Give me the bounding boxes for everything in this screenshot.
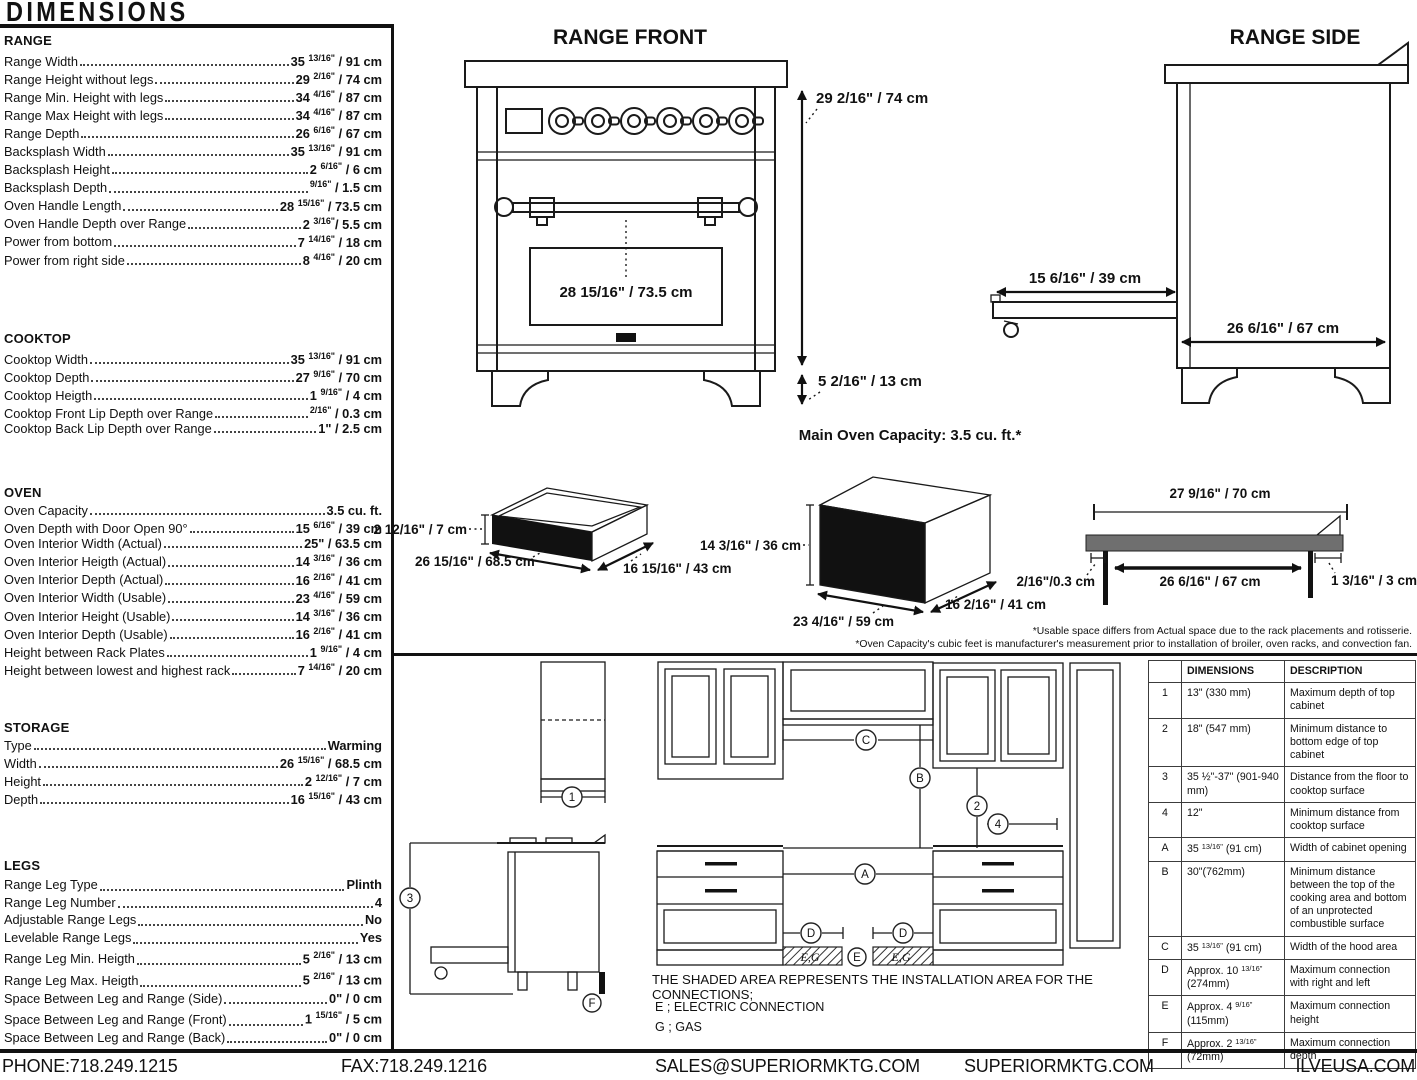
table-description-cell: Maximum connection height	[1285, 996, 1416, 1032]
footer-divider	[0, 1049, 1417, 1053]
dotted-leader	[168, 565, 293, 567]
spec-label: Adjustable Range Legs	[4, 911, 136, 929]
spec-row: Oven Interior Width (Usable)23 4/16" / 5…	[4, 588, 382, 606]
spec-value: 8 4/16" / 20 cm	[303, 250, 382, 268]
legend-gas: G ; GAS	[655, 1020, 702, 1034]
spec-label: Range Depth	[4, 126, 79, 141]
svg-text:1: 1	[569, 792, 575, 804]
spec-label: Power from bottom	[4, 234, 112, 249]
spec-value: 7 14/16" / 20 cm	[298, 660, 382, 678]
table-dimension-cell: 30"(762mm)	[1182, 861, 1285, 936]
spec-value: 2 12/16" / 7 cm	[305, 771, 382, 789]
spec-value: 35 13/16" / 91 cm	[291, 349, 382, 367]
spec-row: Oven Depth with Door Open 90°15 6/16" / …	[4, 518, 382, 536]
rack-lip-label: 2/16"/0.3 cm	[1017, 574, 1095, 589]
spec-row: Power from bottom7 14/16" / 18 cm	[4, 232, 382, 250]
table-description-cell: Minimum distance between the top of the …	[1285, 861, 1416, 936]
rack-span-label: 26 6/16" / 67 cm	[1160, 574, 1261, 589]
right-foot	[704, 371, 760, 406]
svg-text:D: D	[807, 928, 815, 940]
dotted-leader	[188, 227, 301, 229]
spec-label: Backsplash Height	[4, 162, 110, 177]
dotted-leader	[34, 748, 326, 750]
callout-D-left: D	[801, 923, 821, 943]
svg-text:D: D	[899, 928, 907, 940]
drawer-depth-label: 16 15/16" / 43 cm	[623, 561, 731, 576]
spec-list-oven: Oven Capacity3.5 cu. ft.Oven Depth with …	[4, 503, 382, 678]
footer-phone: PHONE:718.249.1215	[2, 1056, 178, 1077]
spec-value: 4	[375, 894, 382, 912]
dotted-leader	[214, 431, 317, 433]
spec-label: Height	[4, 774, 41, 789]
spec-value: 3.5 cu. ft.	[327, 503, 382, 518]
range-body	[477, 87, 775, 371]
table-key-cell: B	[1149, 861, 1182, 936]
table-key-cell: D	[1149, 959, 1182, 995]
svg-text:C: C	[862, 735, 870, 747]
spec-value: 1 9/16" / 4 cm	[310, 642, 382, 660]
spec-row: Range Depth26 6/16" / 67 cm	[4, 123, 382, 141]
dotted-leader	[118, 906, 373, 908]
spec-row: Levelable Range LegsYes	[4, 929, 382, 947]
dotted-leader	[172, 619, 293, 621]
dotted-leader	[43, 784, 303, 786]
table-key-cell: 3	[1149, 767, 1182, 802]
spec-label: Range Leg Number	[4, 894, 116, 912]
spec-value: 34 4/16" / 87 cm	[296, 87, 382, 105]
spec-value: 0" / 0 cm	[329, 990, 382, 1008]
spec-row: Oven Interior Height (Usable)14 3/16" / …	[4, 606, 382, 624]
spec-row: Range Leg Max. Heigth5 2/16" / 13 cm	[4, 968, 382, 989]
table-row: C35 13/16" (91 cm)Width of the hood area	[1149, 936, 1416, 959]
spec-value: 28 15/16" / 73.5 cm	[280, 196, 382, 214]
left-foot	[492, 371, 548, 406]
dotted-leader	[165, 100, 293, 102]
rack-top-label: 27 9/16" / 70 cm	[1170, 486, 1271, 501]
spec-row: Depth16 15/16" / 43 cm	[4, 789, 382, 807]
spec-row: Oven Capacity3.5 cu. ft.	[4, 503, 382, 518]
callout-1: 1	[562, 787, 582, 807]
spec-row: Width26 15/16" / 68.5 cm	[4, 753, 382, 771]
table-description-cell: Maximum connection with right and left	[1285, 959, 1416, 995]
table-dimension-cell: Approx. 4 9/16" (115mm)	[1182, 996, 1285, 1032]
dotted-leader	[232, 673, 295, 675]
open-door-profile	[431, 947, 508, 963]
dotted-leader	[165, 118, 293, 120]
table-description-cell: Width of cabinet opening	[1285, 838, 1416, 861]
spec-label: Oven Interior Width (Usable)	[4, 590, 166, 605]
spec-value: 26 6/16" / 67 cm	[296, 123, 382, 141]
spec-label: Cooktop Front Lip Depth over Range	[4, 406, 213, 421]
spec-label: Type	[4, 738, 32, 753]
installation-side-view: 1 3 F	[398, 658, 613, 1010]
dotted-leader	[155, 82, 293, 84]
table-header-cell	[1149, 661, 1182, 683]
section-heading: RANGE	[4, 33, 382, 48]
spec-list-range: Range Width35 13/16" / 91 cmRange Height…	[4, 51, 382, 268]
spec-value: No	[365, 911, 382, 929]
table-key-cell: A	[1149, 838, 1182, 861]
section-cooktop: COOKTOP Cooktop Width35 13/16" / 91 cmCo…	[4, 331, 382, 436]
spec-value: 16 15/16" / 43 cm	[291, 789, 382, 807]
spec-value: 27 9/16" / 70 cm	[296, 367, 382, 385]
spec-row: Oven Interior Width (Actual)25" / 63.5 c…	[4, 536, 382, 551]
spec-row: Height2 12/16" / 7 cm	[4, 771, 382, 789]
oven-interior-drawing: 14 3/16" / 36 cm 23 4/16" / 59 cm 16 2/1…	[700, 477, 1046, 629]
callout-F: F	[583, 994, 601, 1012]
dotted-leader	[168, 601, 293, 603]
spec-value: 15 6/16" / 39 cm	[296, 518, 382, 536]
spec-row: Oven Interior Depth (Actual)16 2/16" / 4…	[4, 570, 382, 588]
spec-value: 16 2/16" / 41 cm	[296, 570, 382, 588]
right-base-cabinet	[933, 851, 1063, 950]
spec-label: Range Leg Min. Heigth	[4, 950, 135, 968]
dotted-leader	[114, 245, 296, 247]
spec-label: Height between lowest and highest rack	[4, 663, 230, 678]
spec-row: Height between Rack Plates1 9/16" / 4 cm	[4, 642, 382, 660]
spec-row: Space Between Leg and Range (Front)1 15/…	[4, 1007, 382, 1028]
spec-row: Range Min. Height with legs34 4/16" / 87…	[4, 87, 382, 105]
spec-row: Height between lowest and highest rack7 …	[4, 660, 382, 678]
spec-label: Cooktop Depth	[4, 370, 89, 385]
spec-label: Oven Handle Length	[4, 198, 121, 213]
door-depth-label: 15 6/16" / 39 cm	[1029, 270, 1141, 287]
spec-label: Range Min. Height with legs	[4, 90, 163, 105]
table-row: EApprox. 4 9/16" (115mm)Maximum connecti…	[1149, 996, 1416, 1032]
spec-value: 35 13/16" / 91 cm	[291, 141, 382, 159]
range-side-drawing: 15 6/16" / 39 cm 26 6/16" / 67 cm	[985, 40, 1417, 410]
svg-text:F: F	[588, 998, 595, 1010]
footer-site: SUPERIORMKTG.COM	[964, 1056, 1154, 1077]
spec-row: Oven Interior Heigth (Actual)14 3/16" / …	[4, 551, 382, 569]
table-description-cell: Width of the hood area	[1285, 936, 1416, 959]
spec-label: Oven Interior Height (Usable)	[4, 609, 170, 624]
dotted-leader	[91, 380, 293, 382]
table-header-row: DIMENSIONSDESCRIPTION	[1149, 661, 1416, 683]
spec-value: Plinth	[346, 876, 382, 894]
spec-label: Range Max Height with legs	[4, 108, 163, 123]
table-key-cell: 2	[1149, 718, 1182, 767]
callout-B: B	[910, 768, 930, 788]
knobs	[549, 108, 763, 134]
spec-label: Width	[4, 756, 37, 771]
side-left-foot	[1182, 368, 1237, 403]
spec-label: Backsplash Depth	[4, 180, 107, 195]
spec-row: Range Max Height with legs34 4/16" / 87 …	[4, 105, 382, 123]
dotted-leader	[127, 263, 301, 265]
spec-row: Range Width35 13/16" / 91 cm	[4, 51, 382, 69]
right-wall-cabinet	[933, 663, 1063, 768]
spec-label: Space Between Leg and Range (Back)	[4, 1029, 225, 1047]
table-row: B30"(762mm)Minimum distance between the …	[1149, 861, 1416, 936]
spec-value: 5 2/16" / 13 cm	[303, 968, 382, 989]
spec-row: Space Between Leg and Range (Back)0" / 0…	[4, 1029, 382, 1047]
dimensions-spec-sheet: DIMENSIONS RANGE Range Width35 13/16" / …	[0, 0, 1417, 1080]
callout-A: A	[855, 864, 875, 884]
drawer-height-label: 2 12/16" / 7 cm	[374, 522, 467, 537]
svg-text:3: 3	[407, 893, 413, 905]
backsplash-profile	[1378, 43, 1408, 65]
connection-label-right: E,G	[891, 950, 911, 964]
oven-height-label: 14 3/16" / 36 cm	[700, 538, 801, 553]
spec-value: 7 14/16" / 18 cm	[298, 232, 382, 250]
spec-row: Cooktop Heigth1 9/16" / 4 cm	[4, 385, 382, 403]
section-range: RANGE Range Width35 13/16" / 91 cmRange …	[4, 33, 382, 268]
spec-value: 1 9/16" / 4 cm	[310, 385, 382, 403]
table-key-cell: 4	[1149, 802, 1182, 837]
vertical-divider	[391, 24, 394, 1050]
table-dimension-cell: 13" (330 mm)	[1182, 683, 1285, 718]
spec-value: 2 3/16"/ 5.5 cm	[303, 214, 382, 232]
installation-front-view: C B 2 4	[650, 658, 1142, 970]
spec-value: 25" / 63.5 cm	[304, 536, 382, 551]
spec-label: Oven Depth with Door Open 90°	[4, 521, 188, 536]
dotted-leader	[215, 416, 308, 418]
display	[506, 109, 542, 133]
spec-label: Oven Interior Depth (Actual)	[4, 572, 163, 587]
dotted-leader	[140, 985, 300, 987]
dotted-leader	[167, 655, 308, 657]
spec-value: Yes	[360, 929, 382, 947]
spec-label: Oven Capacity	[4, 503, 88, 518]
spec-row: TypeWarming	[4, 738, 382, 753]
dotted-leader	[137, 963, 301, 965]
spec-label: Oven Handle Depth over Range	[4, 216, 186, 231]
capacity-drawings: 2 12/16" / 7 cm 26 15/16" / 68.5 cm 16 1…	[395, 425, 1417, 657]
spec-value: 26 15/16" / 68.5 cm	[280, 753, 382, 771]
rack-edge-label: 1 3/16" / 3 cm	[1331, 573, 1417, 588]
table-row: A35 13/16" (91 cm)Width of cabinet openi…	[1149, 838, 1416, 861]
table-description-cell: Distance from the floor to cooktop surfa…	[1285, 767, 1416, 802]
section-heading: COOKTOP	[4, 331, 382, 346]
spec-label: Power from right side	[4, 253, 125, 268]
range-front-drawing: 28 15/16" / 73.5 cm 29 2/16" / 74 cm 5 2…	[440, 55, 910, 415]
dotted-leader	[94, 398, 308, 400]
dotted-leader	[165, 583, 293, 585]
dotted-leader	[190, 531, 294, 533]
dotted-leader	[138, 924, 363, 926]
connection-strip	[599, 972, 605, 994]
spec-label: Oven Interior Heigth (Actual)	[4, 554, 166, 569]
spec-row: Range Height without legs29 2/16" / 74 c…	[4, 69, 382, 87]
drawer-width-label: 26 15/16" / 68.5 cm	[415, 554, 535, 569]
door-roller	[1004, 323, 1018, 337]
table-dimension-cell: 35 13/16" (91 cm)	[1182, 936, 1285, 959]
svg-text:B: B	[916, 773, 924, 785]
dotted-leader	[81, 136, 293, 138]
spec-label: Range Width	[4, 54, 78, 69]
footnote-2: *Oven Capacity's cubic feet is manufactu…	[700, 639, 1412, 652]
spec-value: 0" / 0 cm	[329, 1029, 382, 1047]
spec-row: Range Leg Min. Heigth5 2/16" / 13 cm	[4, 947, 382, 968]
spec-label: Height between Rack Plates	[4, 645, 165, 660]
spec-value: 14 3/16" / 36 cm	[296, 551, 382, 569]
spec-row: Range Leg Number4	[4, 894, 382, 912]
callout-C: C	[856, 730, 876, 750]
capacity-footnotes: *Usable space differs from Actual space …	[700, 626, 1412, 651]
footer-fax: FAX:718.249.1216	[341, 1056, 487, 1077]
spec-row: Space Between Leg and Range (Side)0" / 0…	[4, 990, 382, 1008]
spec-label: Range Leg Max. Heigth	[4, 972, 138, 990]
dotted-leader	[90, 513, 325, 515]
dimensions-table: DIMENSIONSDESCRIPTION113" (330 mm)Maximu…	[1148, 660, 1416, 1069]
spec-row: Backsplash Width35 13/16" / 91 cm	[4, 141, 382, 159]
range-profile	[508, 852, 599, 972]
callout-E: E	[848, 948, 866, 966]
callout-4: 4	[988, 814, 1008, 834]
spec-row: Power from right side8 4/16" / 20 cm	[4, 250, 382, 268]
table-row: 335 ½"-37" (901-940 mm)Distance from the…	[1149, 767, 1416, 802]
rack-profile-drawing: 27 9/16" / 70 cm 2/16"/0.3 cm 26 6/16" /…	[1017, 486, 1417, 605]
dotted-leader	[227, 1041, 327, 1043]
spec-row: Backsplash Depth9/16" / 1.5 cm	[4, 177, 382, 195]
legend-electric: E ; ELECTRIC CONNECTION	[655, 1000, 824, 1014]
spec-row: Cooktop Depth27 9/16" / 70 cm	[4, 367, 382, 385]
svg-text:2: 2	[974, 801, 980, 813]
table-header-cell: DIMENSIONS	[1182, 661, 1285, 683]
rack-bar	[1086, 535, 1343, 551]
cooktop-slab	[1165, 65, 1408, 83]
spec-label: Backsplash Width	[4, 144, 106, 159]
height-label: 29 2/16" / 74 cm	[816, 90, 928, 107]
footer-brand: ILVEUSA.COM	[1296, 1056, 1416, 1077]
spec-list-storage: TypeWarmingWidth26 15/16" / 68.5 cmHeigh…	[4, 738, 382, 807]
installation-note: THE SHADED AREA REPRESENTS THE INSTALLAT…	[652, 972, 1152, 1002]
spec-value: 1 15/16" / 5 cm	[305, 1007, 382, 1028]
left-wall-cabinet	[658, 662, 783, 779]
dotted-leader	[133, 942, 358, 944]
spec-label: Space Between Leg and Range (Front)	[4, 1011, 227, 1029]
spec-label: Cooktop Width	[4, 352, 88, 367]
dotted-leader	[40, 802, 288, 804]
handle-length-label: 28 15/16" / 73.5 cm	[559, 284, 692, 301]
spec-value: 29 2/16" / 74 cm	[296, 69, 382, 87]
section-heading: STORAGE	[4, 720, 382, 735]
dotted-leader	[109, 191, 308, 193]
table-row: 412"Minimum distance from cooktop surfac…	[1149, 802, 1416, 837]
footnote-1: *Usable space differs from Actual space …	[700, 626, 1412, 639]
table-dimension-cell: 35 13/16" (91 cm)	[1182, 838, 1285, 861]
table-row: DApprox. 10 13/16" (274mm)Maximum connec…	[1149, 959, 1416, 995]
table-row: 113" (330 mm)Maximum depth of top cabine…	[1149, 683, 1416, 718]
spec-label: Space Between Leg and Range (Side)	[4, 990, 222, 1008]
dotted-leader	[80, 64, 289, 66]
svg-text:E: E	[853, 952, 861, 964]
table-dimension-cell: Approx. 10 13/16" (274mm)	[1182, 959, 1285, 995]
spec-row: Adjustable Range LegsNo	[4, 911, 382, 929]
range-front-title: RANGE FRONT	[460, 26, 800, 50]
spec-row: Cooktop Front Lip Depth over Range2/16" …	[4, 403, 382, 421]
spec-value: 35 13/16" / 91 cm	[291, 51, 382, 69]
spec-label: Depth	[4, 792, 38, 807]
dotted-leader	[39, 766, 278, 768]
side-right-foot	[1335, 368, 1390, 403]
dotted-leader	[224, 1002, 327, 1004]
dotted-leader	[170, 637, 294, 639]
left-base-cabinet	[657, 851, 783, 950]
spec-label: Cooktop Back Lip Depth over Range	[4, 421, 212, 436]
section-storage: STORAGE TypeWarmingWidth26 15/16" / 68.5…	[4, 720, 382, 807]
table-dimension-cell: 35 ½"-37" (901-940 mm)	[1182, 767, 1285, 802]
table-row: 218" (547 mm)Minimum distance to bottom …	[1149, 718, 1416, 767]
spec-label: Range Height without legs	[4, 72, 153, 87]
spec-label: Oven Interior Depth (Usable)	[4, 627, 168, 642]
spec-row: Oven Handle Depth over Range2 3/16"/ 5.5…	[4, 214, 382, 232]
dotted-leader	[123, 209, 278, 211]
dotted-leader	[164, 546, 302, 548]
open-door	[993, 302, 1177, 318]
svg-text:4: 4	[995, 819, 1002, 831]
dotted-leader	[108, 154, 289, 156]
table-key-cell: E	[1149, 996, 1182, 1032]
spec-value: 14 3/16" / 36 cm	[296, 606, 382, 624]
table-description-cell: Minimum distance from cooktop surface	[1285, 802, 1416, 837]
table-header-cell: DESCRIPTION	[1285, 661, 1416, 683]
spec-value: 2 6/16" / 6 cm	[310, 159, 382, 177]
section-heading: OVEN	[4, 485, 382, 500]
table-description-cell: Maximum depth of top cabinet	[1285, 683, 1416, 718]
dotted-leader	[90, 362, 289, 364]
title-underline	[0, 24, 393, 28]
section-heading: LEGS	[4, 858, 382, 873]
svg-text:A: A	[861, 869, 869, 881]
spec-value: 5 2/16" / 13 cm	[303, 947, 382, 968]
dotted-leader	[100, 889, 345, 891]
callout-2: 2	[967, 796, 987, 816]
section-oven: OVEN Oven Capacity3.5 cu. ft.Oven Depth …	[4, 485, 382, 678]
spec-value: 9/16" / 1.5 cm	[310, 177, 382, 195]
backsplash	[465, 61, 787, 87]
dotted-leader	[229, 1024, 303, 1026]
table-dimension-cell: 12"	[1182, 802, 1285, 837]
spec-row: Range Leg TypePlinth	[4, 876, 382, 894]
spec-row: Oven Handle Length28 15/16" / 73.5 cm	[4, 196, 382, 214]
spec-label: Cooktop Heigth	[4, 388, 92, 403]
callout-3: 3	[400, 888, 420, 908]
spec-list-cooktop: Cooktop Width35 13/16" / 91 cmCooktop De…	[4, 349, 382, 436]
spec-row: Backsplash Height2 6/16" / 6 cm	[4, 159, 382, 177]
storage-drawer-drawing: 2 12/16" / 7 cm 26 15/16" / 68.5 cm 16 1…	[374, 488, 732, 576]
roller	[435, 967, 447, 979]
spec-label: Oven Interior Width (Actual)	[4, 536, 162, 551]
section-legs: LEGS Range Leg TypePlinthRange Leg Numbe…	[4, 858, 382, 1046]
spec-value: 1" / 2.5 cm	[318, 421, 382, 436]
spec-row: Cooktop Width35 13/16" / 91 cm	[4, 349, 382, 367]
spec-value: Warming	[328, 738, 382, 753]
spec-label: Range Leg Type	[4, 876, 98, 894]
spec-value: 23 4/16" / 59 cm	[296, 588, 382, 606]
table-key-cell: C	[1149, 936, 1182, 959]
table-key-cell: 1	[1149, 683, 1182, 718]
dotted-leader	[112, 172, 308, 174]
spec-value: 34 4/16" / 87 cm	[296, 105, 382, 123]
spec-value: 2/16" / 0.3 cm	[310, 403, 382, 421]
oven-depth-label: 16 2/16" / 41 cm	[945, 597, 1046, 612]
footer-email: SALES@SUPERIORMKTG.COM	[655, 1056, 920, 1077]
spec-label: Levelable Range Legs	[4, 929, 131, 947]
spec-row: Oven Interior Depth (Usable)16 2/16" / 4…	[4, 624, 382, 642]
logo-badge	[616, 333, 636, 342]
spec-value: 16 2/16" / 41 cm	[296, 624, 382, 642]
spec-list-legs: Range Leg TypePlinthRange Leg Number4Adj…	[4, 876, 382, 1046]
table-description-cell: Minimum distance to bottom edge of top c…	[1285, 718, 1416, 767]
leg-height-label: 5 2/16" / 13 cm	[818, 373, 922, 390]
spec-row: Cooktop Back Lip Depth over Range1" / 2.…	[4, 421, 382, 436]
connection-label-left: E,G	[800, 950, 820, 964]
range-depth-label: 26 6/16" / 67 cm	[1227, 320, 1339, 337]
callout-D-right: D	[893, 923, 913, 943]
table-dimension-cell: 18" (547 mm)	[1182, 718, 1285, 767]
